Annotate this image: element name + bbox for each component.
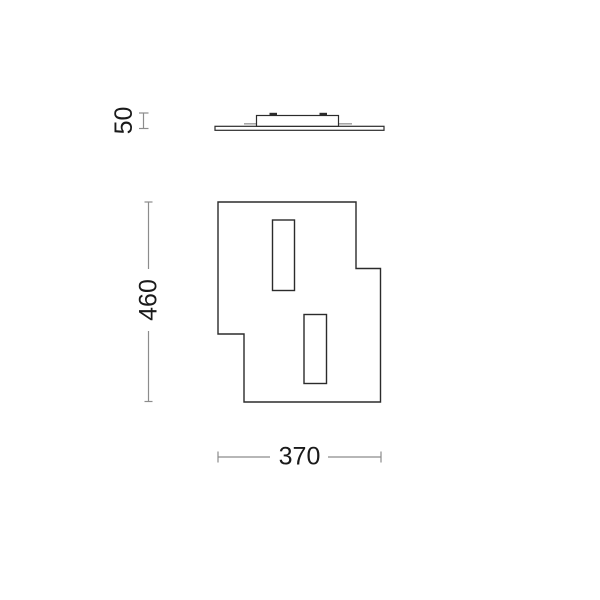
drawing-svg: 50 460 370 [0, 0, 600, 600]
cutout-lower [304, 315, 327, 384]
dim-line-profile-height [139, 113, 149, 129]
mounting-clip-right [320, 113, 328, 116]
mounting-clip-left [270, 113, 278, 116]
dim-label-front-height: 460 [135, 279, 163, 321]
side-view-canopy-box [257, 116, 339, 127]
front-view-outline [218, 202, 381, 402]
dim-label-front-width: 370 [279, 443, 321, 471]
side-view [215, 113, 384, 131]
dim-label-profile-height: 50 [110, 107, 138, 135]
front-view [218, 202, 381, 402]
dimension-drawing: 50 460 370 [0, 0, 600, 600]
cutout-upper [273, 220, 295, 291]
